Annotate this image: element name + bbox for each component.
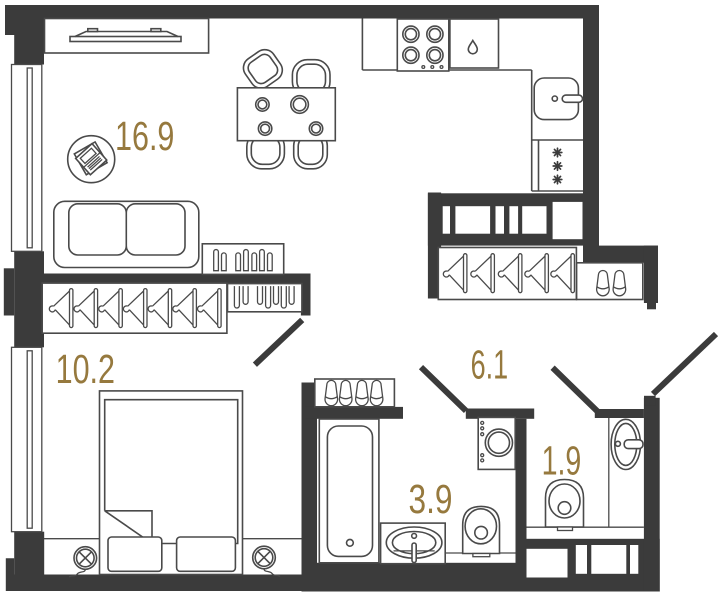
svg-text:10.2: 10.2 — [56, 346, 115, 392]
svg-text:1.9: 1.9 — [542, 438, 582, 484]
svg-text:6.1: 6.1 — [471, 342, 509, 388]
svg-text:3.9: 3.9 — [409, 476, 453, 522]
svg-text:16.9: 16.9 — [115, 113, 174, 159]
